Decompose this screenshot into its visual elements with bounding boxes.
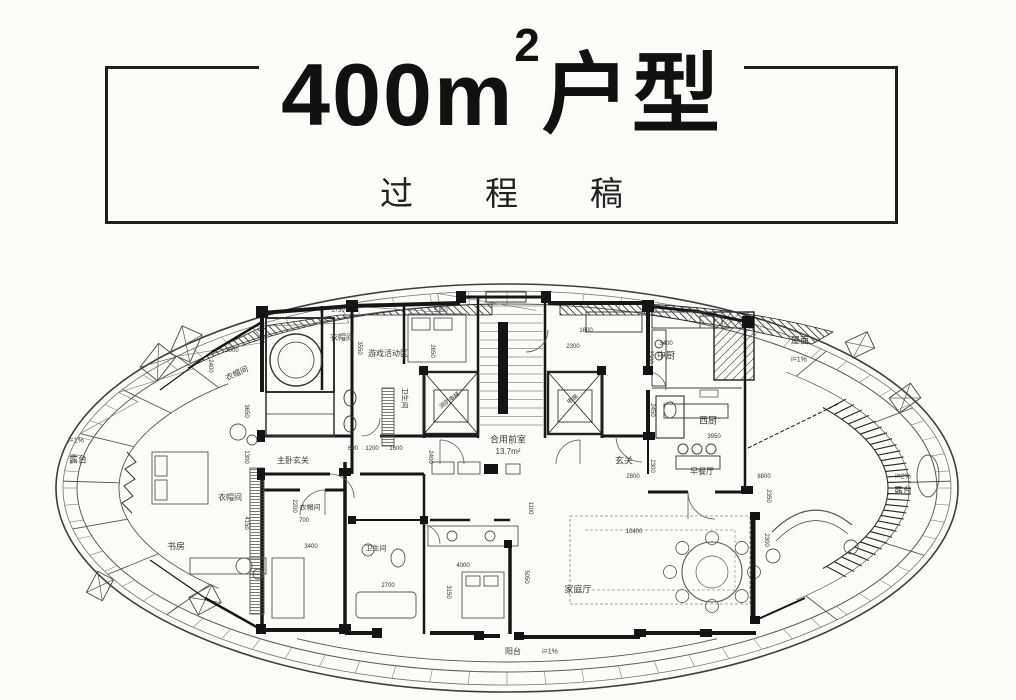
wardrobe-shelves xyxy=(250,468,264,614)
window-panel-icon xyxy=(170,326,202,362)
dining-table-icon xyxy=(682,542,742,602)
floor-plan-drawing xyxy=(0,0,1016,700)
floor-plan: 露台i=1%书房衣帽间衣帽间主卧玄关衣帽间卫生间衣帽间游戏活动区卫生间消防电梯电… xyxy=(0,0,1016,700)
bed-icon xyxy=(272,558,304,618)
bed-icon xyxy=(408,314,466,362)
bathtub-icon xyxy=(356,592,416,618)
bed-icon xyxy=(152,452,208,504)
toilet-icon xyxy=(344,416,356,432)
page: 400m2户型 过程稿 xyxy=(0,0,1016,700)
window-panel-icon xyxy=(889,383,921,413)
window-panel-icon xyxy=(845,332,874,358)
breakfast-table-icon xyxy=(676,456,720,469)
toilet-icon xyxy=(344,390,356,406)
master-bath xyxy=(266,318,356,436)
window-panel-icon xyxy=(140,343,176,380)
stair-stringer xyxy=(498,322,508,414)
